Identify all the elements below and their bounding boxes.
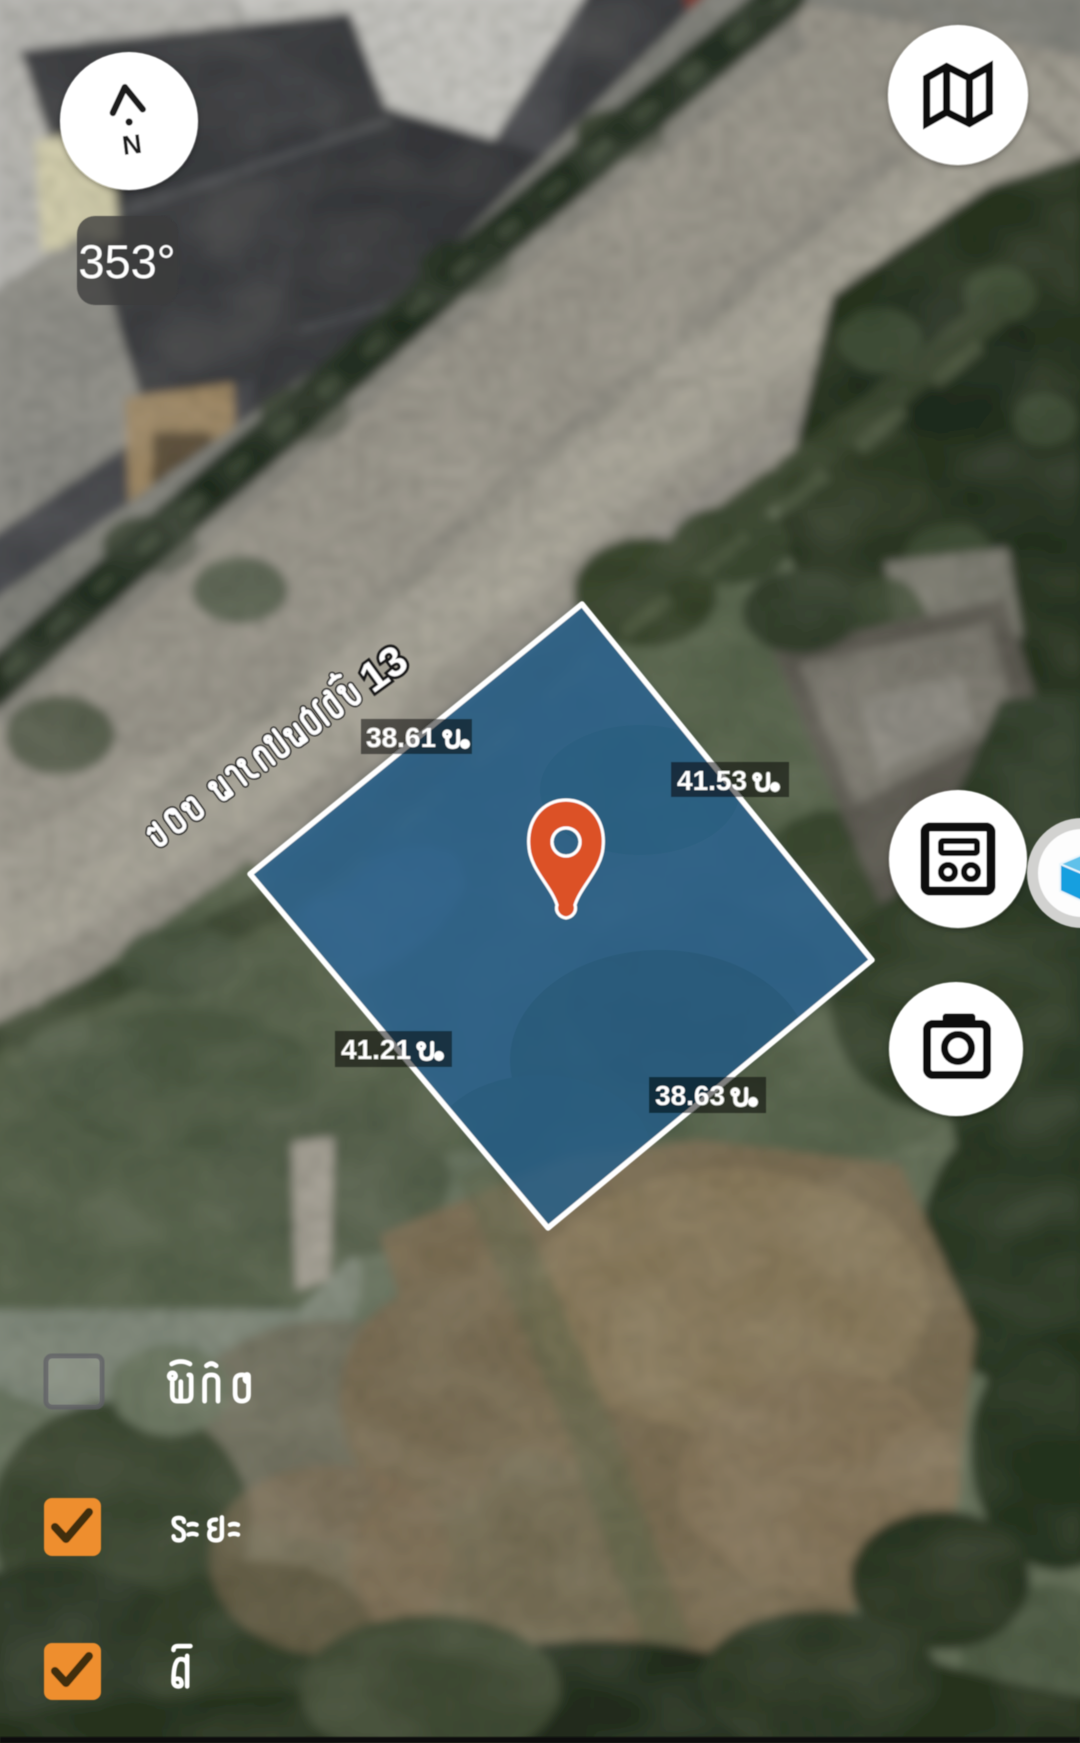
- svg-text:38.61: 38.61: [366, 722, 436, 753]
- svg-text:353°: 353°: [78, 235, 175, 288]
- svg-text:38.63: 38.63: [655, 1080, 725, 1111]
- svg-text:41.21: 41.21: [341, 1034, 411, 1065]
- svg-text:N: N: [120, 129, 143, 161]
- svg-text:41.53: 41.53: [677, 765, 747, 796]
